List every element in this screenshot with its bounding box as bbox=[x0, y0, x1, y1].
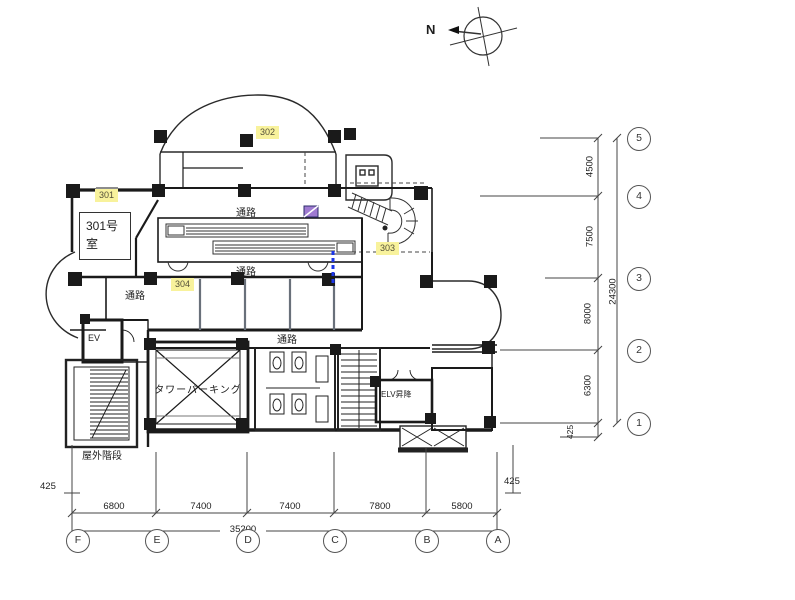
compass-icon bbox=[448, 7, 517, 66]
passage-label-left: 通路 bbox=[125, 287, 145, 302]
dim-col-7400b: 7400 bbox=[272, 501, 308, 512]
dim-col-offset-left: 425 bbox=[40, 481, 56, 492]
toilet-block bbox=[255, 348, 335, 430]
grid-bubble-4: 4 bbox=[627, 185, 651, 209]
badge-301: 301 bbox=[95, 189, 118, 202]
dim-col-7800: 7800 bbox=[362, 501, 398, 512]
floor-plan-page: N 301 302 303 304 301号室 通路 通路 通路 通路 タワーパ… bbox=[0, 0, 795, 600]
dim-row-4500: 4500 bbox=[585, 147, 596, 187]
ev-label: EV bbox=[88, 333, 100, 343]
grid-bubble-2: 2 bbox=[627, 339, 651, 363]
room304-partitions bbox=[200, 279, 334, 330]
badge-303: 303 bbox=[376, 242, 399, 255]
dim-col-6800: 6800 bbox=[96, 501, 132, 512]
room-301-label: 301号室 bbox=[79, 212, 131, 260]
grid-bubble-B: B bbox=[415, 529, 439, 553]
grid-bubble-A: A bbox=[486, 529, 510, 553]
dim-col-5800: 5800 bbox=[444, 501, 480, 512]
passage-label-top: 通路 bbox=[236, 204, 256, 219]
dim-row-8000: 8000 bbox=[583, 294, 594, 334]
grid-bubble-C: C bbox=[323, 529, 347, 553]
grid-bubble-3: 3 bbox=[627, 267, 651, 291]
grid-bubble-F: F bbox=[66, 529, 90, 553]
passage-label-mid: 通路 bbox=[236, 263, 256, 278]
grid-bubble-D: D bbox=[236, 529, 260, 553]
grid-bubble-1: 1 bbox=[627, 412, 651, 436]
dim-row-offset: 425 bbox=[565, 416, 575, 448]
grid-dimension-lines-right bbox=[480, 134, 621, 441]
badge-302: 302 bbox=[256, 126, 279, 139]
tower-parking-label: タワーパーキング bbox=[150, 381, 246, 396]
north-label: N bbox=[426, 22, 435, 37]
dim-row-total: 24300 bbox=[608, 270, 619, 314]
outdoor-stairs-label: 屋外階段 bbox=[82, 447, 122, 462]
passage-label-bottom: 通路 bbox=[277, 331, 297, 346]
grid-bubble-E: E bbox=[145, 529, 169, 553]
dim-col-offset-right: 425 bbox=[504, 476, 520, 487]
elv-shaft-label: ELV昇降 bbox=[381, 389, 412, 400]
dim-row-7500: 7500 bbox=[585, 217, 596, 257]
dim-row-6300: 6300 bbox=[583, 366, 594, 406]
interior-stair bbox=[338, 348, 380, 430]
outdoor-stairs bbox=[66, 360, 137, 447]
walkway-machine bbox=[166, 224, 355, 271]
grid-dimension-lines-bottom bbox=[64, 445, 521, 531]
badge-304: 304 bbox=[171, 278, 194, 291]
dim-col-7400a: 7400 bbox=[183, 501, 219, 512]
grid-bubble-5: 5 bbox=[627, 127, 651, 151]
purple-symbol-icon bbox=[304, 206, 318, 217]
